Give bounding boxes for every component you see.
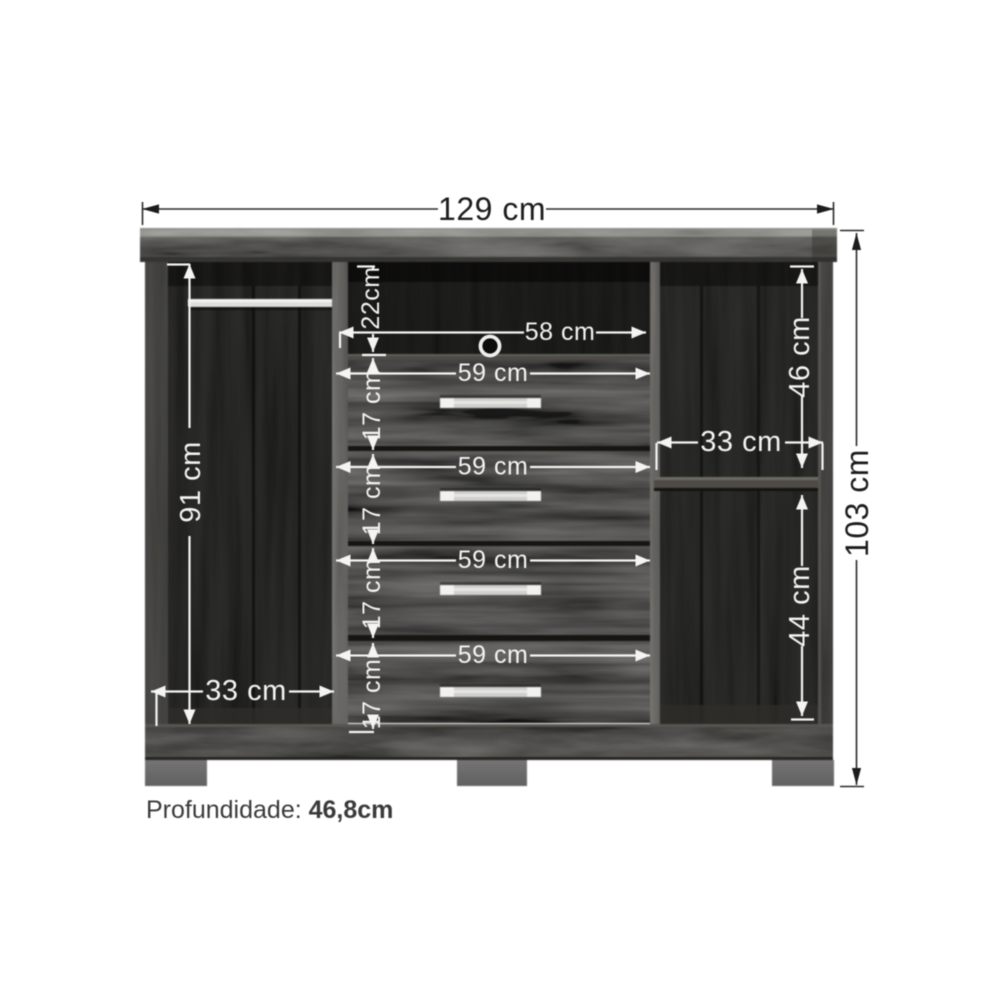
svg-text:103 cm: 103 cm (839, 449, 875, 557)
svg-text:91 cm: 91 cm (175, 441, 207, 522)
svg-text:17 cm: 17 cm (358, 659, 386, 730)
svg-text:59 cm: 59 cm (458, 453, 529, 481)
svg-text:44 cm: 44 cm (784, 565, 816, 646)
svg-text:33 cm: 33 cm (700, 426, 781, 458)
svg-text:59 cm: 59 cm (458, 546, 529, 574)
svg-text:129 cm: 129 cm (438, 191, 546, 227)
svg-text:17 cm: 17 cm (358, 465, 386, 536)
svg-text:Profundidade: 46,8cm: Profundidade: 46,8cm (146, 796, 393, 824)
svg-text:46 cm: 46 cm (784, 316, 816, 397)
svg-text:59 cm: 59 cm (458, 641, 529, 669)
svg-text:17 cm: 17 cm (358, 559, 386, 630)
svg-text:33 cm: 33 cm (205, 675, 286, 707)
svg-text:58 cm: 58 cm (525, 318, 596, 346)
svg-text:59 cm: 59 cm (458, 359, 529, 387)
svg-text:17 cm: 17 cm (358, 370, 386, 441)
svg-text:22cm: 22cm (357, 266, 385, 329)
